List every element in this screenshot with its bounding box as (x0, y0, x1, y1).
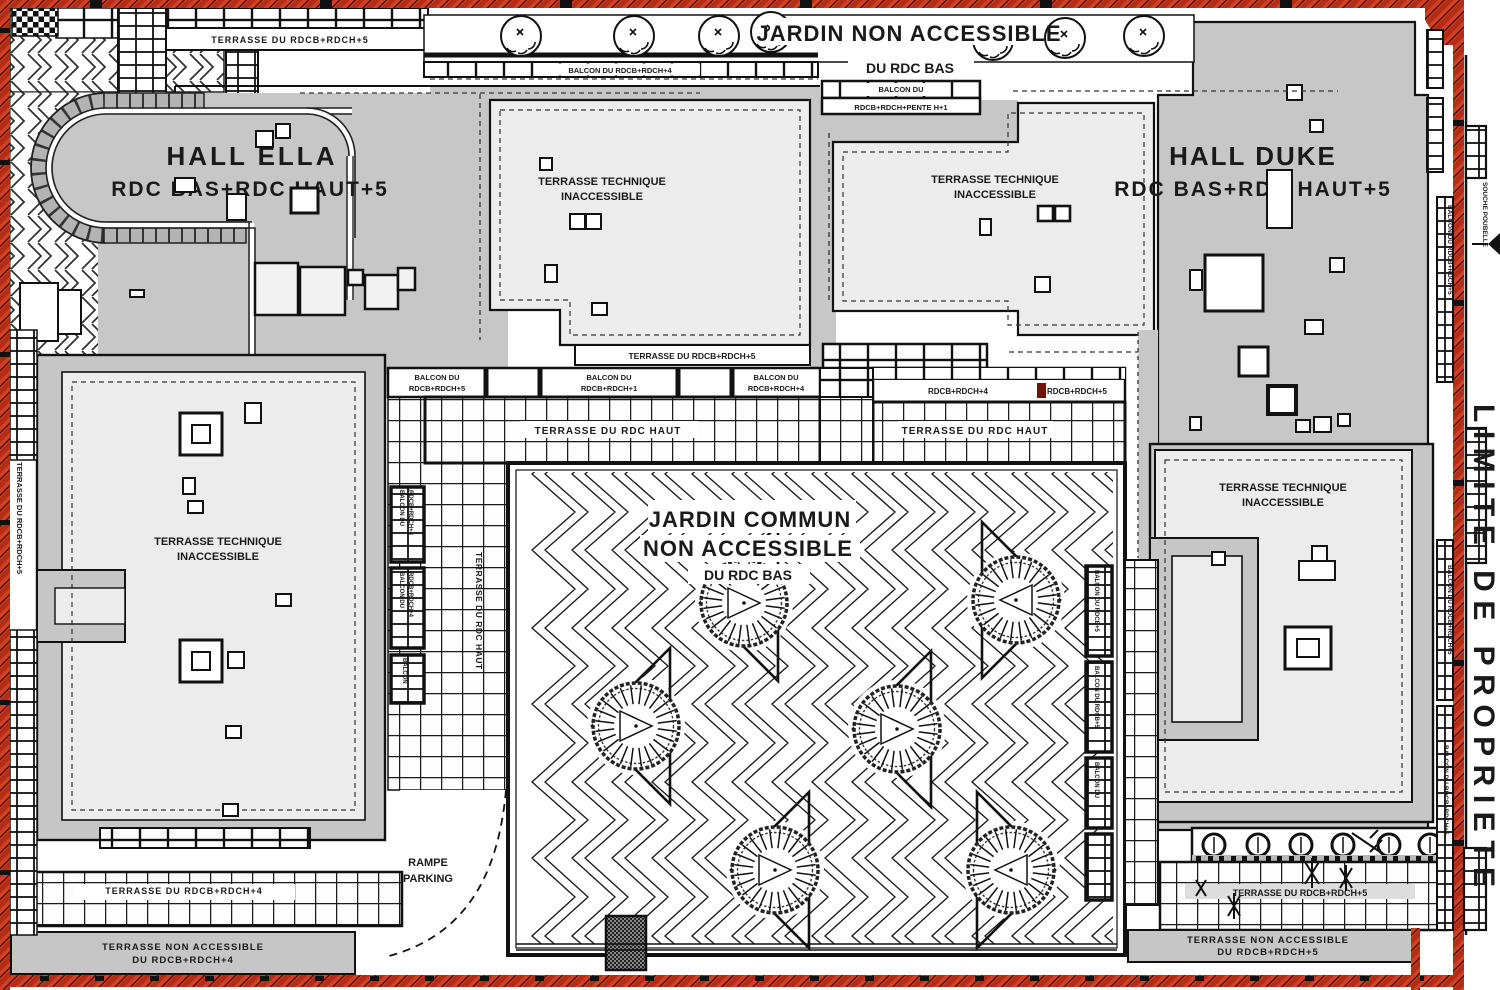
svg-text:BALCON DU: BALCON DU (398, 490, 404, 526)
svg-text:BALCON DU RDCB+5: BALCON DU RDCB+5 (1093, 570, 1099, 633)
svg-text:BALCON DU: BALCON DU (415, 373, 460, 382)
svg-text:INACCESSIBLE: INACCESSIBLE (561, 191, 643, 203)
svg-text:INACCESSIBLE: INACCESSIBLE (1242, 497, 1324, 509)
svg-text:BALCON DU RDCB+5: BALCON DU RDCB+5 (1093, 666, 1099, 729)
svg-text:TERRASSE DU RDC HAUT: TERRASSE DU RDC HAUT (535, 426, 682, 437)
svg-text:BALCON DU RDCB+RDCH+4: BALCON DU RDCB+RDCH+4 (568, 66, 672, 75)
svg-text:RDC BAS+RDC HAUT+5: RDC BAS+RDC HAUT+5 (1114, 178, 1392, 201)
svg-text:BALCON DU RDCB+RDCH+5: BALCON DU RDCB+RDCH+5 (1446, 205, 1453, 295)
svg-text:TERRASSE DU RDC HAUT: TERRASSE DU RDC HAUT (902, 426, 1049, 437)
svg-text:TERRASSE DU RDCB+RDCH+5: TERRASSE DU RDCB+RDCH+5 (211, 35, 369, 45)
svg-text:BALCON DU RDCB+RDCH+5: BALCON DU RDCB+RDCH+5 (1442, 745, 1449, 835)
svg-text:BALCON DU: BALCON DU (1093, 762, 1099, 798)
svg-text:DU RDC BAS: DU RDC BAS (704, 567, 792, 583)
svg-text:TERRASSE DU RDCB+RDCH+5: TERRASSE DU RDCB+RDCH+5 (15, 462, 24, 574)
svg-text:BALCON DU: BALCON DU (587, 373, 632, 382)
svg-text:INACCESSIBLE: INACCESSIBLE (954, 189, 1036, 201)
svg-text:JARDIN NON ACCESSIBLE: JARDIN NON ACCESSIBLE (757, 21, 1062, 46)
svg-text:LIMITE DE PROPRIETE: LIMITE DE PROPRIETE (1467, 404, 1500, 896)
svg-text:BALCON: BALCON (401, 658, 407, 684)
svg-text:DU RDCB+RDCH+5: DU RDCB+RDCH+5 (1217, 947, 1319, 958)
svg-text:RDC BAS+RDC HAUT+5: RDC BAS+RDC HAUT+5 (111, 178, 389, 201)
svg-text:BALCON DU RDCB+RDCH+5: BALCON DU RDCB+RDCH+5 (1446, 565, 1453, 655)
svg-text:RDCB+RDCH+4: RDCB+RDCH+4 (407, 490, 413, 536)
svg-text:RDCB+RDCH+4: RDCB+RDCH+4 (928, 387, 989, 396)
svg-text:TERRASSE TECHNIQUE: TERRASSE TECHNIQUE (154, 536, 282, 548)
svg-text:RDCB+RDCH+4: RDCB+RDCH+4 (748, 384, 805, 393)
svg-text:TERRASSE NON ACCESSIBLE: TERRASSE NON ACCESSIBLE (102, 942, 264, 953)
svg-text:PARKING: PARKING (403, 873, 453, 885)
svg-text:TERRASSE DU RDC HAUT: TERRASSE DU RDC HAUT (474, 552, 484, 670)
svg-text:RAMPE: RAMPE (408, 857, 448, 869)
svg-text:TERRASSE TECHNIQUE: TERRASSE TECHNIQUE (1219, 482, 1347, 494)
svg-text:NON ACCESSIBLE: NON ACCESSIBLE (643, 536, 853, 561)
svg-text:TERRASSE TECHNIQUE: TERRASSE TECHNIQUE (538, 176, 666, 188)
svg-text:BALCON DU: BALCON DU (398, 572, 404, 608)
svg-text:DU RDCB+RDCH+4: DU RDCB+RDCH+4 (132, 955, 234, 966)
svg-text:BALCON DU: BALCON DU (754, 373, 799, 382)
svg-text:HALL ELLA: HALL ELLA (167, 141, 338, 171)
svg-text:TERRASSE DU RDCB+RDCH+5: TERRASSE DU RDCB+RDCH+5 (1233, 888, 1368, 898)
svg-text:INACCESSIBLE: INACCESSIBLE (177, 551, 259, 563)
svg-text:TERRASSE NON ACCESSIBLE: TERRASSE NON ACCESSIBLE (1187, 935, 1349, 946)
svg-text:RDCB+RDCH+1: RDCB+RDCH+1 (581, 384, 637, 393)
svg-text:RDCB+RDCH+PENTE H+1: RDCB+RDCH+PENTE H+1 (854, 103, 947, 112)
svg-text:RDCB+RDCH+5: RDCB+RDCH+5 (1047, 387, 1108, 396)
svg-text:HALL DUKE: HALL DUKE (1169, 141, 1337, 171)
svg-text:SOUCHE POUBELLE: SOUCHE POUBELLE (1481, 182, 1488, 248)
svg-text:RDCB+RDCH+5: RDCB+RDCH+5 (409, 384, 465, 393)
svg-text:TERRASSE DU RDCB+RDCH+5: TERRASSE DU RDCB+RDCH+5 (628, 351, 755, 361)
svg-text:JARDIN COMMUN: JARDIN COMMUN (649, 507, 851, 532)
svg-text:TERRASSE TECHNIQUE: TERRASSE TECHNIQUE (931, 174, 1059, 186)
svg-text:DU RDC BAS: DU RDC BAS (866, 60, 954, 76)
svg-text:RDCB+RDCH+4: RDCB+RDCH+4 (407, 572, 413, 618)
svg-text:TERRASSE DU RDCB+RDCH+4: TERRASSE DU RDCB+RDCH+4 (105, 886, 263, 896)
svg-text:BALCON DU: BALCON DU (879, 85, 924, 94)
